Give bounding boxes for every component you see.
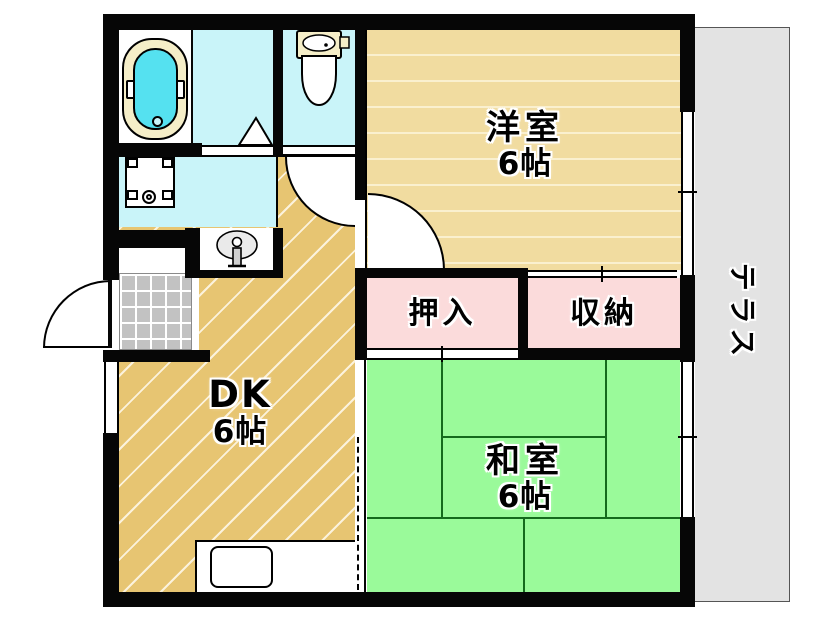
vanity-sink — [217, 231, 257, 266]
folding-door-triangle — [239, 118, 272, 145]
room-name: テラス — [726, 263, 757, 361]
room-size: 6帖 — [213, 415, 268, 450]
room-size: 6帖 — [498, 147, 553, 182]
label-japanese-room: 和室 6帖 — [420, 438, 630, 518]
room-name: DK — [208, 374, 271, 415]
room-name: 和室 — [486, 442, 564, 480]
room-name: 収納 — [570, 297, 638, 331]
label-terrace: テラス — [697, 267, 787, 357]
label-dk: DK 6帖 — [155, 372, 325, 452]
room-size: 6帖 — [498, 480, 553, 515]
label-western-room: 洋室 6帖 — [420, 102, 630, 188]
toilet — [297, 31, 349, 105]
label-storage: 収納 — [528, 293, 680, 335]
label-closet: 押入 — [367, 293, 518, 335]
floor-plan: 洋室 6帖 DK 6帖 和室 6帖 押入 収納 テラス — [0, 0, 829, 631]
room-name: 洋室 — [486, 109, 564, 147]
room-name: 押入 — [409, 297, 477, 331]
